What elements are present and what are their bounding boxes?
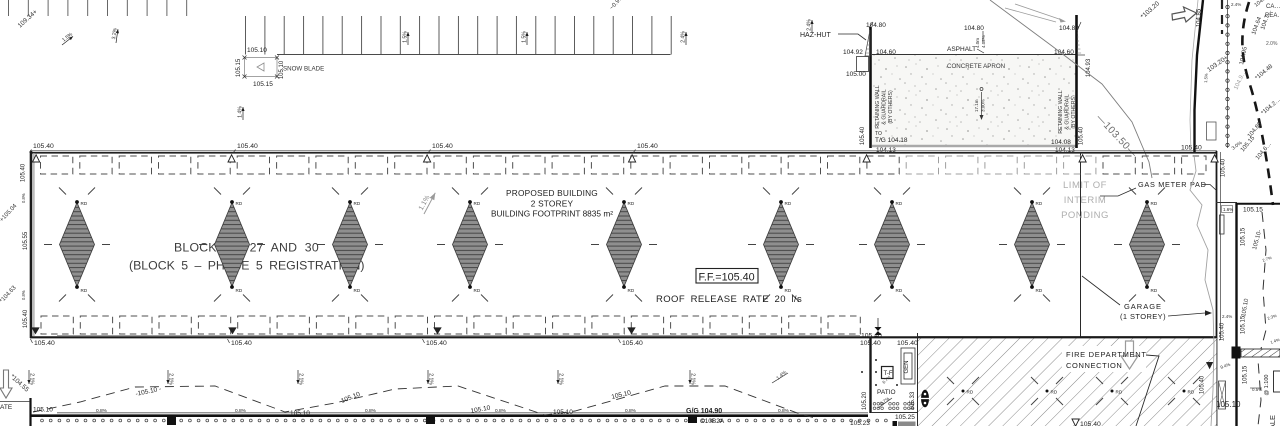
svg-text:105.40: 105.40 xyxy=(21,163,27,182)
svg-text:GEN: GEN xyxy=(904,360,910,373)
svg-text:PROPOSED BUILDING: PROPOSED BUILDING xyxy=(506,188,598,198)
svg-text:1.5%: 1.5% xyxy=(522,31,528,43)
svg-text:105.40: 105.40 xyxy=(34,340,55,347)
svg-text:T/G 104.18: T/G 104.18 xyxy=(875,137,908,144)
svg-text:105.40: 105.40 xyxy=(237,143,258,150)
svg-text:105.40: 105.40 xyxy=(33,143,54,150)
svg-text:RD: RD xyxy=(785,201,792,206)
svg-text:105.40: 105.40 xyxy=(861,333,882,340)
svg-text:RD: RD xyxy=(236,201,243,206)
svg-text:RD: RD xyxy=(474,288,481,293)
svg-text:RD: RD xyxy=(1036,288,1043,293)
svg-text:1.5%: 1.5% xyxy=(403,31,409,43)
svg-text:2 STOREY: 2 STOREY xyxy=(531,199,574,209)
svg-text:104.60: 104.60 xyxy=(876,49,896,56)
svg-text:PATIO: PATIO xyxy=(877,389,896,396)
svg-text:RD: RD xyxy=(1036,201,1043,206)
svg-text:@ 1:100: @ 1:100 xyxy=(1264,375,1270,396)
svg-text:RD: RD xyxy=(1151,288,1158,293)
svg-text:0.8%: 0.8% xyxy=(235,408,247,414)
svg-text:CA…: CA… xyxy=(1266,4,1280,10)
svg-text:104.85: 104.85 xyxy=(1197,8,1203,27)
svg-text:2.0%: 2.0% xyxy=(1266,41,1278,47)
svg-text:GARAGE: GARAGE xyxy=(1124,302,1162,311)
svg-text:1.5%: 1.5% xyxy=(1203,73,1209,83)
svg-text:0.8%: 0.8% xyxy=(365,408,377,414)
svg-text:PONDING: PONDING xyxy=(1061,210,1109,221)
svg-text:0.8%: 0.8% xyxy=(21,193,26,203)
svg-text:(BLOCK 5 – PHASE 5 REGISTRATIO: (BLOCK 5 – PHASE 5 REGISTRATION) xyxy=(129,259,365,273)
svg-text:104.08: 104.08 xyxy=(1051,139,1071,146)
svg-text:17.1m: 17.1m xyxy=(974,99,979,112)
svg-text:SNOW BLADE: SNOW BLADE xyxy=(283,66,324,73)
svg-text:105.10: 105.10 xyxy=(553,409,573,416)
svg-text:RD: RD xyxy=(81,201,88,206)
svg-text:FIRE DEPARTMENT: FIRE DEPARTMENT xyxy=(1066,350,1147,359)
svg-text:LIMIT OF: LIMIT OF xyxy=(1063,180,1107,191)
svg-text:RD: RD xyxy=(474,201,481,206)
svg-text:105.40: 105.40 xyxy=(1221,158,1227,177)
svg-text:RD: RD xyxy=(896,288,903,293)
svg-text:(BY OTHERS): (BY OTHERS) xyxy=(1071,95,1077,129)
svg-text:105.40: 105.40 xyxy=(1181,145,1202,152)
svg-text:GAS METER PAD: GAS METER PAD xyxy=(1138,180,1207,189)
svg-text:105.40: 105.40 xyxy=(426,340,447,347)
svg-text:BUILDING FOOTPRINT 8835 m²: BUILDING FOOTPRINT 8835 m² xyxy=(491,209,613,219)
svg-text:2.1%: 2.1% xyxy=(298,373,304,385)
svg-text:RD: RD xyxy=(354,288,361,293)
svg-text:RETAINING WALL: RETAINING WALL xyxy=(1058,90,1064,133)
svg-text:RD: RD xyxy=(354,201,361,206)
svg-text:2.1%: 2.1% xyxy=(690,373,696,385)
svg-text:RD: RD xyxy=(236,288,243,293)
svg-text:1.6%: 1.6% xyxy=(1223,207,1233,212)
svg-text:C10B2A: C10B2A xyxy=(700,418,725,425)
svg-text:0.8%: 0.8% xyxy=(778,408,790,414)
svg-text:RD: RD xyxy=(1116,390,1123,395)
svg-text:105.40: 105.40 xyxy=(1200,375,1206,394)
svg-text:105.40: 105.40 xyxy=(1079,126,1085,145)
svg-text:105.33: 105.33 xyxy=(910,391,916,410)
svg-text:RD: RD xyxy=(1051,390,1058,395)
svg-text:4.02%: 4.02% xyxy=(981,35,986,48)
svg-text:105.15: 105.15 xyxy=(253,81,273,88)
svg-text:CONNECTION: CONNECTION xyxy=(1066,361,1122,370)
svg-text:2.4%: 2.4% xyxy=(807,19,813,31)
svg-text:RD: RD xyxy=(1188,390,1195,395)
svg-text:105.55: 105.55 xyxy=(23,231,29,250)
svg-text:105.15: 105.15 xyxy=(1241,227,1247,246)
svg-text:105.10: 105.10 xyxy=(290,410,310,417)
svg-text:SWALE: SWALE xyxy=(1268,415,1277,426)
svg-text:G/G 104.90: G/G 104.90 xyxy=(686,408,722,415)
svg-text:105.40: 105.40 xyxy=(231,340,252,347)
svg-text:105.40: 105.40 xyxy=(1080,421,1101,426)
svg-text:105.40: 105.40 xyxy=(860,126,866,145)
svg-text:RD: RD xyxy=(628,201,635,206)
svg-text:1.4%: 1.4% xyxy=(238,106,244,118)
svg-text:105.40: 105.40 xyxy=(432,143,453,150)
svg-text:105.40: 105.40 xyxy=(622,340,643,347)
svg-text:ROOF RELEASE RATE 20 l/s: ROOF RELEASE RATE 20 l/s xyxy=(656,294,802,305)
svg-text:RD: RD xyxy=(1151,201,1158,206)
svg-text:REA…: REA… xyxy=(1265,13,1280,19)
svg-text:INTERIM: INTERIM xyxy=(1064,195,1107,206)
svg-text:105.10: 105.10 xyxy=(247,47,267,54)
svg-text:105.10: 105.10 xyxy=(33,407,53,414)
svg-text:105.40: 105.40 xyxy=(1220,322,1226,341)
svg-text:105.40: 105.40 xyxy=(23,309,29,328)
svg-text:0.8%: 0.8% xyxy=(21,290,26,300)
svg-text:104.80: 104.80 xyxy=(1059,25,1079,32)
svg-text:ASPHALT: ASPHALT xyxy=(947,46,976,53)
svg-text:0.8%: 0.8% xyxy=(625,408,637,414)
svg-text:& GUARDRAIL: & GUARDRAIL xyxy=(1065,94,1071,129)
svg-text:105.10: 105.10 xyxy=(1216,400,1241,409)
svg-text:2.1%: 2.1% xyxy=(558,373,564,385)
svg-text:104.92: 104.92 xyxy=(843,49,863,56)
svg-text:0.8%: 0.8% xyxy=(96,408,108,414)
svg-text:0.8%: 0.8% xyxy=(495,408,507,414)
svg-text:2.4%: 2.4% xyxy=(681,31,687,43)
svg-text:(1 STOREY): (1 STOREY) xyxy=(1120,312,1166,321)
svg-text:105.15: 105.15 xyxy=(236,58,242,77)
svg-text:105.25: 105.25 xyxy=(895,414,915,421)
svg-text:2.1%: 2.1% xyxy=(29,373,35,385)
svg-text:2.4%: 2.4% xyxy=(1222,314,1232,319)
svg-text:105.20: 105.20 xyxy=(862,391,868,410)
svg-text:105.40: 105.40 xyxy=(860,340,881,347)
svg-text:104.80: 104.80 xyxy=(964,25,984,32)
svg-text:ATE: ATE xyxy=(0,404,13,411)
svg-text:CONCRETE APRON: CONCRETE APRON xyxy=(947,63,1005,70)
svg-text:105.15: 105.15 xyxy=(1243,365,1249,384)
svg-text:RD: RD xyxy=(896,201,903,206)
svg-text:2.1%: 2.1% xyxy=(168,373,174,385)
svg-text:RD: RD xyxy=(785,288,792,293)
svg-text:RD: RD xyxy=(967,390,974,395)
svg-text:& GUARDRAIL: & GUARDRAIL xyxy=(882,89,888,124)
svg-text:RETAINING WALL: RETAINING WALL xyxy=(875,85,881,128)
svg-text:RD: RD xyxy=(628,288,635,293)
svg-text:4.0m: 4.0m xyxy=(975,38,980,48)
svg-text:(BY OTHERS): (BY OTHERS) xyxy=(888,90,894,124)
svg-text:2.1%: 2.1% xyxy=(428,373,434,385)
svg-text:HAZ-HUT: HAZ-HUT xyxy=(800,32,831,39)
svg-text:105.40: 105.40 xyxy=(897,340,918,347)
svg-text:RD: RD xyxy=(81,288,88,293)
svg-text:F.F.=105.40: F.F.=105.40 xyxy=(699,272,755,284)
svg-text:105.00: 105.00 xyxy=(846,71,866,78)
svg-text:105.40: 105.40 xyxy=(637,143,658,150)
svg-text:2.4%: 2.4% xyxy=(1231,2,1241,7)
svg-text:105.15: 105.15 xyxy=(1243,207,1263,214)
